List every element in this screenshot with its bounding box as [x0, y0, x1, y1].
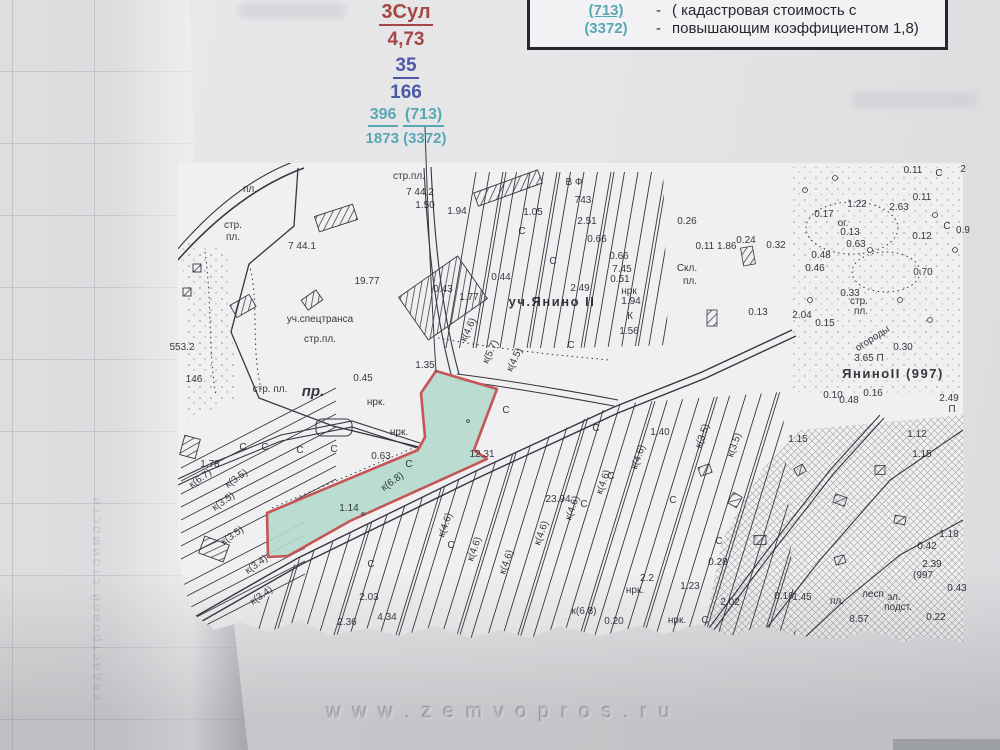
cadastral-map-svg: пл.стр.пл.стр.пл.7 44.21.507 44.119.7755… — [0, 0, 1000, 750]
map-label: 2.63 — [889, 202, 909, 213]
map-label: 1.94 — [621, 296, 641, 307]
map-label: 2.51 — [577, 216, 597, 227]
map-label: 1.05 — [523, 207, 543, 218]
map-label: 0.9 — [956, 225, 970, 236]
map-label: 0.32 — [766, 240, 786, 251]
map-label: С — [549, 256, 556, 267]
map-label: 0.48 — [811, 250, 831, 261]
map-label: С — [239, 442, 246, 453]
map-label: уч.спецтранса — [287, 314, 354, 325]
map-label: С — [502, 405, 509, 416]
map-label: пл. — [683, 276, 697, 287]
map-label: С — [367, 559, 374, 570]
map-label: нрк. — [626, 585, 644, 596]
map-label: 1.22 — [847, 199, 867, 210]
map-label: С — [447, 540, 454, 551]
map-label: 12.31 — [469, 449, 494, 460]
map-label: С — [701, 615, 708, 626]
annotation-parcel-code: 3Сул — [379, 2, 432, 26]
map-label: пл. — [830, 596, 844, 607]
map-label: С — [935, 168, 942, 179]
map-label: 0.46 — [805, 263, 825, 274]
annotation-value: 166 — [328, 83, 484, 103]
map-label: П — [948, 404, 955, 415]
map-label: 0.17 — [814, 209, 834, 220]
map-label: (997 — [913, 570, 933, 581]
map-label: 0.44 — [491, 272, 511, 283]
site-watermark: w w w . z e m v o p r o s . r u — [0, 701, 1000, 724]
map-label: 2.02 — [720, 597, 740, 608]
map-label: 0.51 — [610, 274, 630, 285]
map-label: С — [592, 423, 599, 434]
map-label: стр.пл. — [393, 171, 425, 182]
map-label: 2.04 — [792, 310, 812, 321]
map-label: 4.34 — [377, 612, 397, 623]
map-label: С — [405, 459, 412, 470]
map-label: 0.26 — [677, 216, 697, 227]
map-label: 1.40 — [650, 427, 670, 438]
annotation-value: 396 — [368, 107, 399, 127]
map-label: 0.28 — [708, 557, 728, 568]
map-label: 7 44.1 — [288, 241, 316, 252]
map-label: ЯниноII (997) — [842, 366, 944, 381]
map-label: 0.13 — [748, 307, 768, 318]
map-label: 0.20 — [604, 616, 624, 627]
annotation-value: 1873 (3372) — [328, 131, 484, 147]
map-label: В Ф — [565, 177, 582, 188]
map-label: 3.65 П — [854, 353, 883, 364]
map-label: 0.66 — [587, 234, 607, 245]
map-label: нрк. — [390, 427, 408, 438]
photo-of-cadastral-map: кадастровой стоимости — [0, 0, 1000, 750]
map-label: 1.14 — [339, 503, 359, 514]
annotation-value: (713) — [403, 107, 444, 127]
map-label: 1.94 — [447, 206, 467, 217]
map-label: 0.11 1.86 — [696, 241, 737, 252]
map-label: 0.43 — [433, 284, 453, 295]
legend-dash: - — [656, 20, 661, 37]
legend-value: (713) — [564, 2, 648, 19]
map-label: 146 — [186, 374, 203, 385]
map-label: К — [627, 311, 633, 322]
map-label: 1.23 — [680, 581, 700, 592]
map-label: 1.18 — [939, 529, 959, 540]
map-label: 1.50 — [415, 200, 435, 211]
map-label: 0.11 — [913, 192, 932, 203]
map-label: Скл. — [677, 263, 697, 274]
legend-box: руб. (713) - ( кадастровая стоимость с (… — [527, 0, 948, 50]
map-label: 1.56 — [619, 326, 639, 337]
map-label: 553.2 — [169, 342, 194, 353]
map-label: 8.57 — [849, 614, 869, 625]
map-label: 19.77 — [354, 276, 379, 287]
map-label: 1.12 — [907, 429, 927, 440]
map-label: к(6.8) — [572, 606, 597, 617]
map-label: С — [669, 495, 676, 506]
annotation-value: 4,73 — [328, 30, 484, 50]
dotted-area-texture — [182, 242, 236, 420]
map-label: 0.12 — [912, 231, 932, 242]
map-label: 0.16 — [863, 388, 883, 399]
map-label: 1.45 — [792, 592, 812, 603]
map-label: нрк. — [668, 615, 686, 626]
map-label: пл. — [854, 306, 868, 317]
photo-edge-shadow — [893, 739, 1000, 750]
map-label: С — [330, 444, 337, 455]
map-label: 0.48 — [839, 395, 859, 406]
map-label: 0.70 — [913, 267, 933, 278]
legend-description: повышающим коэффициентом 1,8) — [672, 20, 919, 37]
map-label: 0.30 — [893, 342, 913, 353]
map-label: 2.2 — [640, 573, 654, 584]
map-label: стр. пл. — [253, 384, 288, 395]
map-label: стр. — [224, 220, 242, 231]
map-label: 0.66 — [609, 251, 629, 262]
map-label: уч.Янино II — [509, 294, 596, 309]
legend-dash: - — [656, 2, 661, 19]
map-label: 1.15 — [912, 449, 932, 460]
map-label: 0.16 — [774, 591, 794, 602]
map-label: 23.94 — [545, 494, 570, 505]
map-label: стр.пл. — [304, 334, 336, 345]
map-label: 743 — [575, 195, 592, 206]
map-label: С — [715, 536, 722, 547]
map-label: С — [567, 340, 574, 351]
map-label: 0.24 — [736, 235, 756, 246]
map-label: 0.11 — [904, 165, 923, 176]
map-label: 1.35 — [415, 360, 435, 371]
map-label: 2.03 — [359, 592, 379, 603]
map-label: подст. — [884, 602, 912, 613]
map-label: С — [943, 221, 950, 232]
map-label: пр. — [302, 383, 325, 400]
map-label: 2.49 — [570, 283, 590, 294]
map-label: 1.77 — [459, 292, 479, 303]
map-label: 2 — [960, 164, 966, 175]
handwritten-annotation-block: 3Сул 4,73 35 166 396 (713) 1873 (3372) — [328, 2, 484, 150]
map-label: 0.43 — [947, 583, 967, 594]
map-label: С — [296, 445, 303, 456]
map-label: пл. — [226, 232, 240, 243]
map-label: 0.42 — [917, 541, 937, 552]
map-label: С — [607, 471, 614, 482]
map-label: 0.22 — [926, 612, 946, 623]
map-label: 0.63 — [846, 239, 866, 250]
map-label: 1.78 — [200, 459, 220, 470]
map-label: 7 44.2 — [406, 187, 434, 198]
map-label: нрк. — [367, 397, 385, 408]
map-label: 2.39 — [922, 559, 942, 570]
map-label: 0.15 — [815, 318, 835, 329]
map-label: С — [580, 499, 587, 510]
map-label: 2.36 — [337, 617, 357, 628]
map-label: 0.45 — [353, 373, 373, 384]
map-label: 1.15 — [788, 434, 808, 445]
annotation-value: 35 — [393, 56, 418, 79]
map-label: 2.49 — [939, 393, 959, 404]
map-label: 0.13 — [840, 227, 860, 238]
map-label: 0.63 — [371, 451, 391, 462]
legend-value: (3372) — [564, 20, 648, 37]
map-label: С — [518, 226, 525, 237]
map-label: лесп — [862, 589, 884, 600]
legend-description: ( кадастровая стоимость с — [672, 2, 856, 19]
map-label: пл. — [243, 184, 257, 195]
map-label: С — [261, 442, 268, 453]
